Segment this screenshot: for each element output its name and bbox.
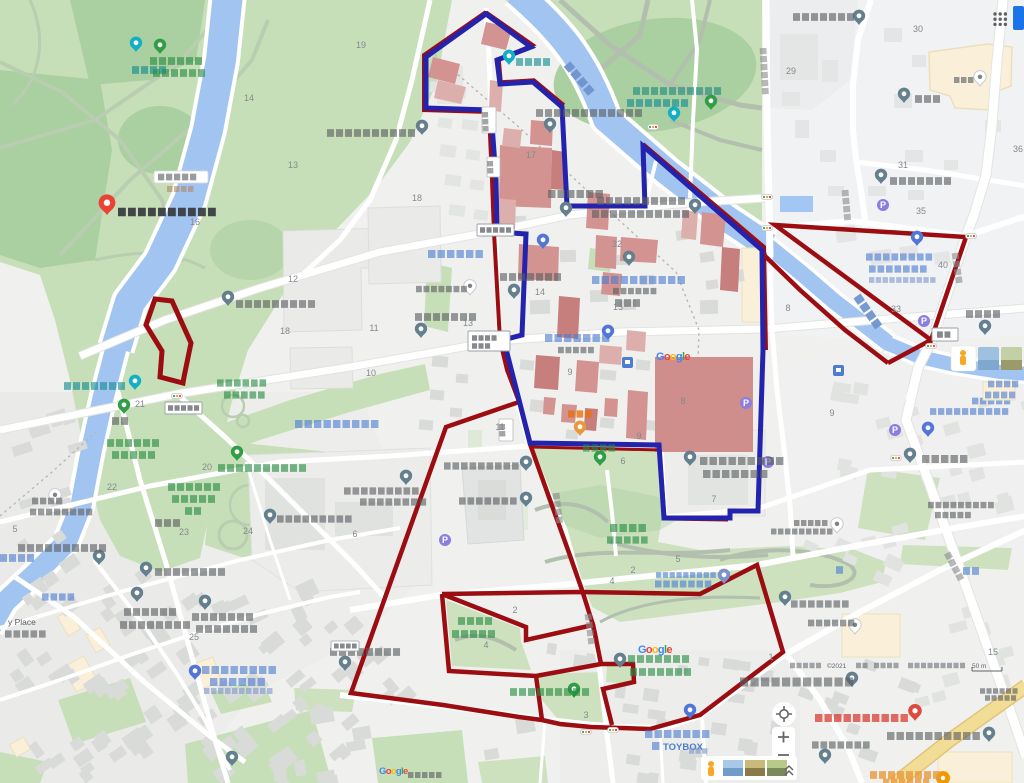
svg-text:15: 15 — [613, 302, 623, 312]
svg-text:25: 25 — [189, 632, 199, 642]
svg-text:9: 9 — [829, 408, 834, 418]
svg-text:36: 36 — [1013, 144, 1023, 154]
svg-text:31: 31 — [898, 160, 908, 170]
svg-text:©2021: ©2021 — [827, 662, 847, 670]
svg-text:5: 5 — [675, 554, 680, 564]
svg-text:9: 9 — [636, 431, 641, 441]
svg-text:13: 13 — [463, 318, 473, 328]
svg-text:14: 14 — [535, 287, 545, 297]
svg-text:5: 5 — [12, 524, 17, 534]
svg-text:10: 10 — [366, 368, 376, 378]
svg-text:35: 35 — [916, 206, 926, 216]
svg-text:Google: Google — [656, 351, 690, 363]
svg-text:6: 6 — [352, 529, 357, 539]
svg-text:P: P — [743, 398, 749, 408]
svg-text:Google: Google — [638, 644, 672, 656]
svg-text:19: 19 — [356, 40, 366, 50]
svg-text:18: 18 — [412, 193, 422, 203]
svg-text:13: 13 — [288, 160, 298, 170]
svg-text:18: 18 — [280, 326, 290, 336]
svg-text:6: 6 — [620, 456, 625, 466]
svg-text:12: 12 — [288, 274, 298, 284]
svg-text:P: P — [921, 316, 927, 326]
svg-text:40: 40 — [938, 260, 948, 270]
svg-text:21: 21 — [135, 399, 145, 409]
svg-text:P: P — [880, 200, 886, 210]
svg-text:4: 4 — [609, 576, 614, 586]
svg-text:23: 23 — [179, 527, 189, 537]
svg-text:20: 20 — [202, 462, 212, 472]
svg-text:Google: Google — [379, 766, 408, 777]
svg-text:24: 24 — [243, 526, 253, 536]
svg-text:30: 30 — [913, 24, 923, 34]
svg-text:3: 3 — [583, 710, 588, 720]
svg-text:1: 1 — [768, 652, 773, 662]
svg-text:17: 17 — [526, 150, 536, 160]
svg-text:50 m: 50 m — [972, 663, 986, 670]
svg-text:9: 9 — [567, 367, 572, 377]
svg-text:14: 14 — [244, 93, 254, 103]
svg-text:8: 8 — [785, 303, 790, 313]
svg-text:P: P — [442, 535, 448, 545]
svg-text:22: 22 — [107, 482, 117, 492]
svg-text:16: 16 — [190, 217, 200, 227]
svg-text:15: 15 — [988, 647, 998, 657]
svg-text:y Place: y Place — [8, 617, 36, 627]
svg-text:29: 29 — [786, 66, 796, 76]
svg-text:1: 1 — [499, 422, 504, 432]
svg-text:2: 2 — [512, 605, 517, 615]
svg-text:4: 4 — [483, 640, 488, 650]
svg-text:8: 8 — [680, 396, 685, 406]
svg-text:2: 2 — [630, 565, 635, 575]
svg-text:7: 7 — [711, 494, 716, 504]
svg-text:11: 11 — [369, 323, 378, 333]
svg-text:33: 33 — [891, 304, 901, 314]
svg-text:P: P — [892, 425, 898, 435]
svg-text:32: 32 — [612, 239, 622, 249]
